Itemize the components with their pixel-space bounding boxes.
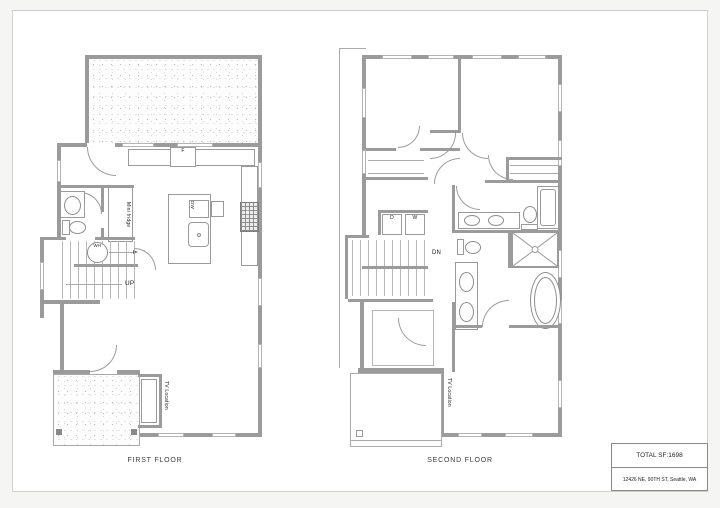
dishwasher: DW [189, 200, 209, 218]
wall [345, 235, 369, 238]
window [258, 344, 262, 368]
window [40, 262, 44, 290]
window [258, 162, 262, 188]
window [428, 55, 454, 59]
window [158, 433, 184, 437]
window [505, 433, 533, 437]
wall [40, 300, 100, 304]
island-end-cabinet [211, 201, 224, 217]
second-floor-caption: SECOND FLOOR [400, 457, 520, 464]
faucet [197, 233, 201, 237]
shower-glass-lines [513, 233, 557, 266]
water-heater: WH [87, 242, 108, 263]
closet-rod [510, 173, 558, 174]
window [458, 433, 482, 437]
dryer-label: D [383, 215, 401, 221]
wall [345, 235, 348, 299]
tv-location-label: TV Location [163, 381, 169, 425]
wall [366, 148, 396, 151]
window [258, 278, 262, 306]
closet-rod [510, 165, 558, 166]
wall [452, 185, 455, 233]
wall [378, 210, 428, 213]
wall [378, 213, 381, 235]
stair-landing-edge [362, 266, 428, 269]
wall [509, 325, 562, 328]
door-leaf [134, 248, 135, 270]
wall [452, 302, 455, 372]
up-label: UP [125, 280, 134, 287]
upper-deck [350, 373, 442, 447]
tv-niche [141, 379, 157, 423]
window [472, 55, 502, 59]
dishwasher-label: DW [190, 201, 195, 209]
bath-sink [464, 215, 480, 226]
window [212, 433, 236, 437]
closet-rod [368, 173, 424, 174]
wall [485, 180, 562, 183]
porch-post [131, 429, 137, 435]
stair-direction-line [66, 284, 122, 285]
toilet-bowl [523, 206, 537, 223]
wall [458, 59, 461, 131]
refrigerator: F [170, 147, 196, 167]
fridge-label: F [171, 148, 195, 154]
window [57, 160, 61, 182]
bath-sink [488, 215, 504, 226]
toilet-bowl [465, 241, 481, 254]
tub-inner [534, 277, 557, 324]
shower [511, 231, 559, 268]
stair-landing-edge [74, 264, 138, 267]
range-label: RE [245, 209, 250, 215]
wall [85, 55, 262, 59]
porch-area [53, 374, 140, 446]
wall [138, 425, 162, 428]
stair-direction-line [109, 252, 133, 253]
address: 12426 NE, 90TH ST, Seattle, WA [611, 468, 708, 491]
deck-post [356, 430, 363, 437]
wall [258, 55, 262, 147]
wall [362, 59, 366, 235]
water-heater-label: WH [88, 243, 107, 248]
wall [159, 374, 162, 428]
wall [506, 157, 562, 160]
porch-post [56, 429, 62, 435]
tv-location-label: TV Location [446, 378, 452, 426]
window [362, 88, 366, 118]
deck-area [89, 59, 258, 143]
dryer: D [382, 214, 402, 235]
tub-inner [540, 189, 556, 226]
mini-fridge-label: Mini fridge [111, 193, 131, 237]
bath-sink [459, 272, 474, 292]
bath-sink [459, 302, 474, 322]
deck-edge-line [350, 440, 442, 441]
wall [138, 433, 262, 437]
window [382, 55, 412, 59]
range [240, 202, 259, 232]
wall [452, 325, 482, 328]
wall [360, 302, 364, 372]
washer-label: W [406, 215, 424, 221]
floor-plan-drawing: F RE DW Mini fridge WH [0, 0, 720, 508]
washer: W [405, 214, 425, 235]
wall [95, 237, 135, 240]
total-sf: TOTAL SF:1698 [611, 443, 708, 467]
window [362, 150, 366, 174]
window [518, 55, 546, 59]
toilet-bowl [69, 221, 86, 234]
window [558, 84, 562, 112]
first-floor-caption: FIRST FLOOR [95, 457, 215, 464]
wall [60, 304, 64, 374]
wall [85, 55, 89, 147]
wall [366, 177, 428, 180]
window [558, 380, 562, 408]
window [122, 143, 154, 147]
roof-outline [339, 48, 366, 49]
bath-sink [64, 196, 81, 215]
toilet-tank [457, 239, 464, 255]
closet-rod [368, 160, 424, 161]
down-label: DN [432, 250, 441, 256]
roof-outline [339, 48, 340, 368]
window [558, 140, 562, 166]
